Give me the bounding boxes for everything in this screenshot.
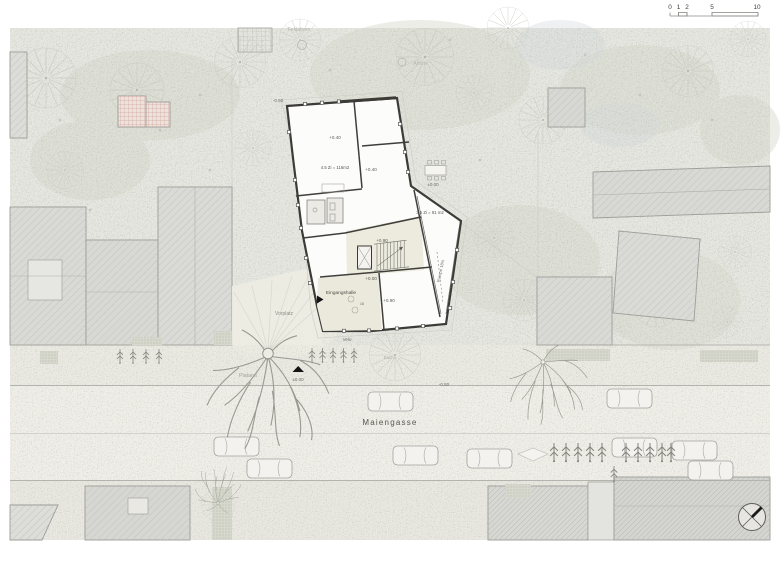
scale-label-1: 1 (677, 4, 681, 11)
car-icon (368, 392, 413, 411)
label-level-terrace: ±0.00 (427, 182, 439, 187)
car-icon (247, 459, 292, 478)
scale-label-2: 2 (685, 4, 689, 11)
label-entrance-hall: Eingangshalle (326, 290, 356, 296)
car-icon (467, 449, 512, 468)
label-level-upper-left: +0.40 (329, 135, 341, 140)
label-level-mid: +0.90 (376, 238, 388, 243)
label-street-level-north: ±0.00 (292, 377, 304, 382)
scale-label-10: 10 (753, 4, 761, 11)
site-plan-drawing: Feldahorn Ahorn Buche Platane Vorplatz V… (0, 0, 780, 563)
label-ahorn: Ahorn (413, 61, 427, 67)
label-level-lower: +0.90 (383, 298, 395, 303)
label-apartment-45: 4.5 Zi = 116m2 (321, 165, 350, 170)
label-feldahorn: Feldahorn (288, 27, 311, 33)
car-icon (688, 461, 733, 480)
label-stair-count: 16 (360, 302, 364, 306)
platane-trunk (263, 348, 274, 359)
car-icon (214, 437, 259, 456)
label-street-level-east: -0.50 (439, 382, 450, 387)
north-arrow-icon (739, 504, 766, 531)
car-icon (672, 441, 717, 460)
scale-bar: 0 1 2 5 10 (668, 4, 761, 16)
label-level-nw: -0.50 (273, 98, 284, 103)
label-apartment-35: 3.5 Zi = 91 m2 (416, 210, 444, 215)
label-level-upper-right: +0.40 (365, 167, 377, 172)
wet-rooms (307, 198, 343, 224)
scale-label-0: 0 (668, 4, 672, 11)
label-platane: Platane (239, 373, 257, 379)
label-buche: Buche (384, 355, 397, 360)
label-street-name: Maiengasse (362, 418, 417, 427)
label-velo: Velo (343, 337, 352, 342)
car-icon (607, 389, 652, 408)
scale-label-5: 5 (710, 4, 714, 11)
label-vorplatz: Vorplatz (275, 311, 294, 317)
label-level-hall: +0.00 (365, 276, 377, 281)
site-plan-sheet: Feldahorn Ahorn Buche Platane Vorplatz V… (0, 0, 780, 563)
car-icon (393, 446, 438, 465)
